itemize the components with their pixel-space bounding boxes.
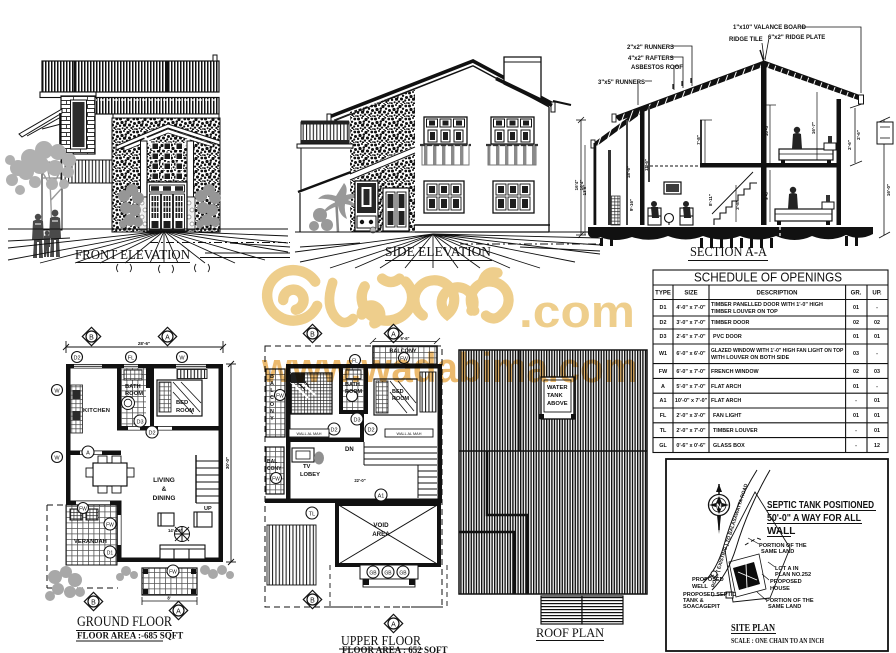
- svg-text:A: A: [165, 335, 170, 342]
- svg-text:B: B: [310, 332, 315, 339]
- svg-text:WALL: WALL: [767, 526, 795, 537]
- svg-text:TL: TL: [660, 428, 667, 434]
- svg-text:4"x2" RAFTERS: 4"x2" RAFTERS: [628, 56, 674, 62]
- svg-text:8'-11": 8'-11": [708, 194, 713, 206]
- svg-text:GB: GB: [369, 571, 377, 577]
- svg-text:WALL AL MAH: WALL AL MAH: [397, 432, 422, 436]
- svg-text:D2: D2: [367, 428, 374, 434]
- svg-text:CONY: CONY: [267, 466, 282, 472]
- svg-text:16'-0": 16'-0": [886, 184, 891, 196]
- svg-text:W: W: [54, 389, 60, 395]
- svg-text:-: -: [876, 305, 878, 311]
- svg-text:D2: D2: [73, 356, 80, 362]
- svg-text:&: &: [162, 486, 167, 493]
- svg-text:5'-0" x 7'-0": 5'-0" x 7'-0": [676, 384, 706, 390]
- svg-text:C: C: [270, 395, 274, 401]
- svg-text:A: A: [391, 332, 396, 339]
- svg-text:FW: FW: [169, 570, 177, 576]
- svg-text:D1: D1: [107, 551, 114, 557]
- svg-text:28'-6": 28'-6": [138, 341, 150, 346]
- svg-text:TYPE: TYPE: [655, 291, 671, 297]
- svg-text:-: -: [876, 384, 878, 390]
- svg-text:02: 02: [853, 369, 859, 375]
- svg-text:FLAT ARCH: FLAT ARCH: [711, 398, 741, 404]
- svg-text:VOID: VOID: [373, 522, 389, 529]
- svg-text:D3: D3: [660, 334, 667, 340]
- svg-text:SAME LAND: SAME LAND: [761, 549, 794, 555]
- svg-text:WITH LOUVER ON BOTH SIDE: WITH LOUVER ON BOTH SIDE: [711, 355, 790, 361]
- svg-text:KITCHEN: KITCHEN: [83, 408, 110, 414]
- svg-text:TIMBER LOUVER ON TOP: TIMBER LOUVER ON TOP: [711, 309, 778, 315]
- svg-text:2'-6": 2'-6": [856, 130, 861, 140]
- svg-text:SIZE: SIZE: [684, 291, 697, 297]
- svg-text:FW: FW: [79, 507, 87, 513]
- svg-text:PLAN NO.252: PLAN NO.252: [775, 572, 811, 578]
- svg-text:2'-0" x 7'-0": 2'-0" x 7'-0": [676, 428, 706, 434]
- svg-text:WELL: WELL: [692, 584, 708, 590]
- svg-text:9'-6": 9'-6": [400, 336, 409, 341]
- svg-text:DESCRIPTION: DESCRIPTION: [756, 291, 797, 297]
- svg-text:DN: DN: [345, 447, 354, 453]
- svg-text:B: B: [89, 335, 94, 342]
- svg-text:01: 01: [853, 305, 859, 311]
- svg-text:FAN LIGHT: FAN LIGHT: [713, 413, 742, 419]
- svg-text:A1: A1: [660, 398, 667, 404]
- svg-text:SAME LAND: SAME LAND: [768, 604, 801, 610]
- svg-text:ROOM: ROOM: [125, 391, 143, 397]
- svg-text:14'-1.5": 14'-1.5": [168, 528, 183, 533]
- svg-text:B: B: [91, 600, 96, 607]
- svg-text:W: W: [54, 456, 60, 462]
- svg-text:6"x2" RIDGE PLATE: 6"x2" RIDGE PLATE: [768, 35, 825, 41]
- svg-text:A: A: [176, 609, 181, 616]
- svg-text:10'-5": 10'-5": [764, 124, 769, 136]
- svg-text:D3: D3: [136, 420, 143, 426]
- svg-text:D3: D3: [353, 418, 360, 424]
- svg-text:10'-0" x 7'-0": 10'-0" x 7'-0": [675, 398, 708, 404]
- svg-text:SECTION A-A: SECTION A-A: [690, 245, 768, 260]
- svg-text:0'-6" x 0'-6": 0'-6" x 0'-6": [676, 443, 706, 449]
- svg-text:AREA: AREA: [372, 531, 390, 538]
- svg-text:HOUSE: HOUSE: [770, 586, 790, 592]
- svg-text:SCALE : ONE CHAIN TO AN INCH: SCALE : ONE CHAIN TO AN INCH: [731, 637, 824, 645]
- svg-text:18'-6": 18'-6": [626, 166, 631, 178]
- svg-text:TV: TV: [303, 464, 311, 470]
- svg-text:30'-0": 30'-0": [225, 457, 230, 469]
- svg-text:ROOM: ROOM: [392, 396, 410, 402]
- svg-text:GROUND FLOOR: GROUND FLOOR: [77, 614, 172, 630]
- svg-text:GB: GB: [399, 571, 407, 577]
- svg-text:A: A: [86, 451, 90, 457]
- svg-text:PVC DOOR: PVC DOOR: [713, 334, 742, 340]
- svg-text:ROOF PLAN: ROOF PLAN: [536, 625, 605, 640]
- svg-text:16'4": 16'4": [579, 180, 584, 191]
- svg-text:SCHEDULE OF OPENINGS: SCHEDULE OF OPENINGS: [694, 270, 842, 285]
- svg-text:TIMBER PANELLED DOOR WITH 1'-0: TIMBER PANELLED DOOR WITH 1'-0" HIGH: [711, 302, 823, 308]
- svg-text:01: 01: [874, 398, 880, 404]
- svg-text:.com: .com: [519, 286, 635, 337]
- svg-text:VERANDAH: VERANDAH: [74, 539, 107, 545]
- svg-text:SEPTIC TANK POSITIONED: SEPTIC TANK POSITIONED: [767, 500, 874, 511]
- svg-text:W1: W1: [659, 351, 667, 357]
- svg-text:FW: FW: [272, 477, 280, 483]
- svg-text:UP.: UP.: [872, 291, 882, 297]
- svg-text:www.wadabima.com: www.wadabima.com: [261, 344, 638, 391]
- svg-text:BAL: BAL: [267, 459, 277, 465]
- svg-text:A: A: [661, 384, 665, 390]
- svg-text:A1: A1: [378, 494, 385, 500]
- svg-text:LIVING: LIVING: [153, 477, 175, 484]
- svg-text:2'-6": 2'-6": [847, 140, 852, 150]
- svg-text:8': 8': [167, 596, 170, 601]
- svg-text:4'-0" x 7'-0": 4'-0" x 7'-0": [676, 305, 706, 311]
- svg-text:A: A: [391, 622, 396, 629]
- svg-text:6'-0" x 7'-0": 6'-0" x 7'-0": [676, 369, 706, 375]
- svg-text:D1: D1: [660, 305, 667, 311]
- svg-text:FL: FL: [660, 413, 667, 419]
- svg-text:D2: D2: [148, 431, 155, 437]
- svg-text:-: -: [855, 428, 857, 434]
- svg-text:6'-0" x 6'-0": 6'-0" x 6'-0": [676, 351, 706, 357]
- svg-text:FLOOR AREA :-685 SQFT: FLOOR AREA :-685 SQFT: [77, 631, 183, 641]
- svg-text:SIDE ELEVATION: SIDE ELEVATION: [385, 244, 491, 259]
- svg-text:D2: D2: [330, 428, 337, 434]
- svg-text:RIDGE TILE: RIDGE TILE: [729, 37, 763, 43]
- svg-text:N: N: [716, 502, 721, 511]
- svg-text:TANK: TANK: [547, 393, 563, 399]
- svg-text:3'-0" x 7'-0": 3'-0" x 7'-0": [676, 320, 706, 326]
- svg-text:B: B: [310, 598, 315, 605]
- svg-text:FRONT ELEVATION: FRONT ELEVATION: [75, 247, 190, 262]
- svg-text:UP: UP: [204, 506, 212, 512]
- svg-text:GLAZED WINDOW WITH 1'-0" HIGH: GLAZED WINDOW WITH 1'-0" HIGH FAN LIGHT …: [711, 348, 844, 354]
- svg-text:22'-0": 22'-0": [354, 478, 365, 483]
- svg-text:16'-7": 16'-7": [811, 122, 816, 134]
- svg-text:TIMBER LOUVER: TIMBER LOUVER: [713, 428, 758, 434]
- svg-text:FW: FW: [276, 394, 284, 400]
- svg-text:D2: D2: [660, 320, 667, 326]
- svg-text:12: 12: [874, 443, 880, 449]
- svg-text:TL: TL: [309, 512, 315, 518]
- svg-text:SITE PLAN: SITE PLAN: [731, 623, 775, 634]
- svg-text:DINING: DINING: [153, 495, 176, 502]
- svg-text:03: 03: [853, 351, 859, 357]
- svg-text:FL: FL: [128, 356, 134, 362]
- svg-text:Y: Y: [270, 416, 274, 422]
- svg-text:01: 01: [874, 428, 880, 434]
- svg-text:-: -: [855, 398, 857, 404]
- svg-text:9'-6": 9'-6": [764, 190, 769, 200]
- svg-text:03: 03: [874, 369, 880, 375]
- svg-text:2'-6" x 7'-0": 2'-6" x 7'-0": [676, 334, 706, 340]
- svg-text:GB: GB: [384, 571, 392, 577]
- svg-text:11'-6": 11'-6": [644, 159, 649, 171]
- svg-text:01: 01: [853, 384, 859, 390]
- svg-text:N: N: [270, 409, 274, 415]
- svg-text:PROPOSED: PROPOSED: [770, 579, 802, 585]
- svg-text:WALL AL MAH: WALL AL MAH: [297, 432, 322, 436]
- svg-text:FLOOR AREA : 652 SQFT: FLOOR AREA : 652 SQFT: [342, 645, 448, 653]
- svg-text:BED: BED: [176, 400, 188, 406]
- svg-text:FRENCH WINDOW: FRENCH WINDOW: [711, 369, 760, 375]
- svg-text:TIMBER DOOR: TIMBER DOOR: [711, 320, 749, 326]
- svg-text:2"x2" RUNNERS: 2"x2" RUNNERS: [627, 45, 674, 51]
- svg-text:GR.: GR.: [851, 291, 862, 297]
- svg-text:02: 02: [874, 320, 880, 326]
- svg-text:FW: FW: [106, 523, 114, 529]
- svg-text:01: 01: [874, 413, 880, 419]
- svg-text:-: -: [855, 443, 857, 449]
- svg-text:01: 01: [874, 334, 880, 340]
- svg-text:FLAT ARCH: FLAT ARCH: [711, 384, 741, 390]
- svg-text:GLASS BOX: GLASS BOX: [713, 443, 745, 449]
- svg-text:W: W: [179, 356, 185, 362]
- svg-text:BATH: BATH: [125, 384, 141, 390]
- svg-text:9'-16": 9'-16": [629, 199, 634, 211]
- svg-text:2'-0" x 3'-0": 2'-0" x 3'-0": [676, 413, 706, 419]
- svg-text:50'-0" A WAY FOR ALL: 50'-0" A WAY FOR ALL: [767, 513, 861, 524]
- svg-text:LOBEY: LOBEY: [300, 472, 320, 478]
- svg-text:O: O: [270, 402, 274, 408]
- svg-text:GL: GL: [659, 443, 667, 449]
- svg-text:01: 01: [853, 413, 859, 419]
- svg-text:7'-8": 7'-8": [696, 135, 701, 145]
- svg-text:SOACAGEPIT: SOACAGEPIT: [683, 604, 721, 610]
- svg-text:1"x10" VALANCE BOARD: 1"x10" VALANCE BOARD: [733, 25, 807, 31]
- svg-text:FW: FW: [659, 369, 668, 375]
- svg-text:ROOM: ROOM: [176, 408, 194, 414]
- svg-text:-: -: [876, 351, 878, 357]
- svg-text:01: 01: [853, 334, 859, 340]
- svg-text:ABOVE: ABOVE: [547, 401, 568, 407]
- svg-text:02: 02: [853, 320, 859, 326]
